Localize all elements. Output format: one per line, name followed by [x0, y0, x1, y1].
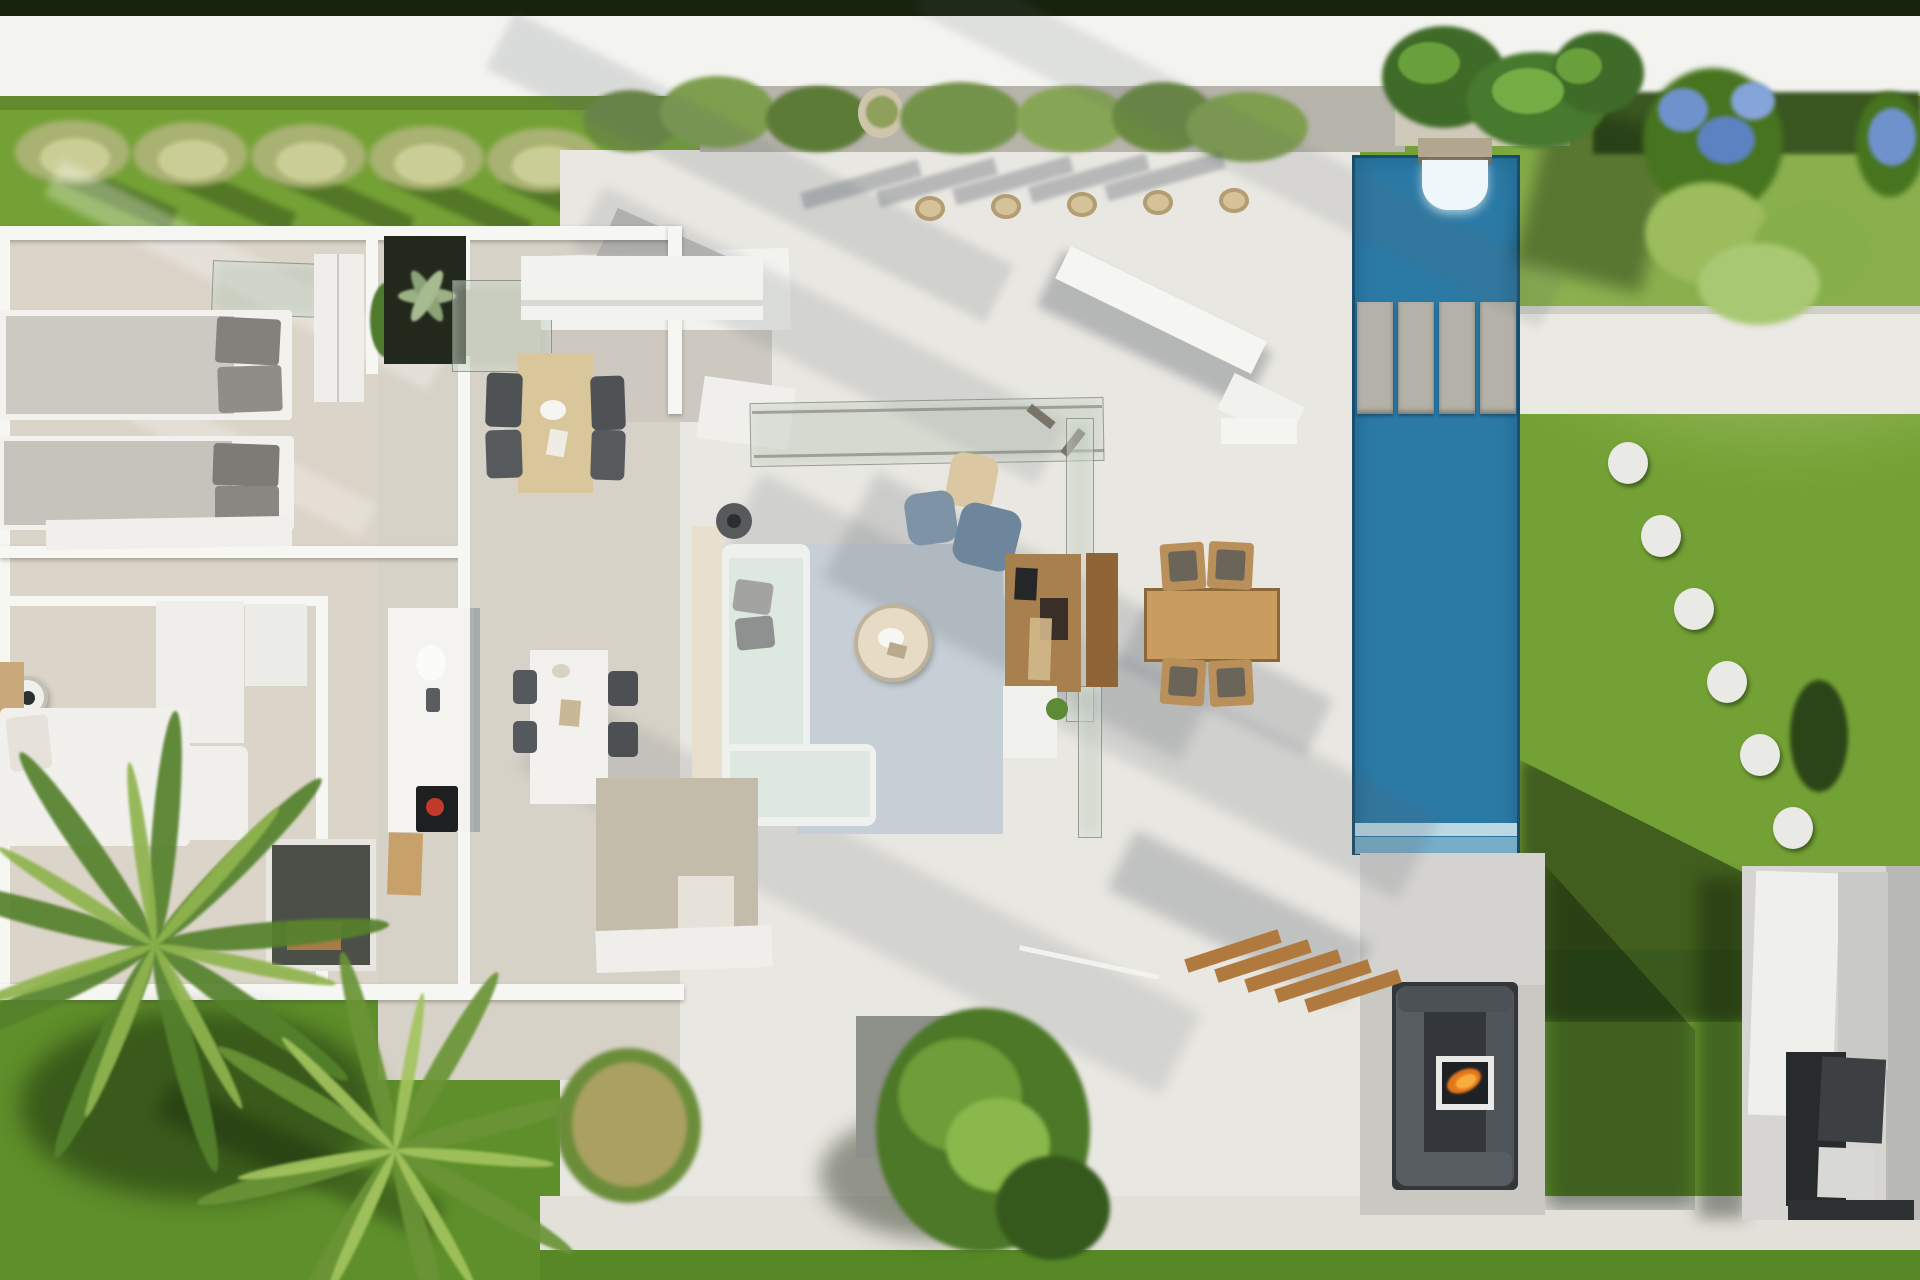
stepping-stones-4 — [1740, 734, 1780, 776]
hydrangea-bloom-1 — [1658, 88, 1708, 132]
lounger-towel-5 — [1219, 188, 1249, 213]
kitchen-board — [387, 832, 423, 895]
sideboard-runner — [1028, 618, 1052, 681]
indoor-chair-r1 — [590, 375, 626, 430]
bed1-pillow-2 — [217, 365, 283, 413]
island-bowl — [552, 664, 570, 678]
white-wall-piece — [1221, 418, 1297, 444]
walkway-right — [1520, 306, 1920, 414]
kitchen-glass-band — [470, 608, 480, 832]
cooktop-burner — [426, 798, 444, 816]
hydrangea-bloom-2 — [1697, 116, 1755, 164]
pool-tanning-slabs-3 — [1480, 302, 1516, 414]
bed2-pillow-1 — [212, 443, 279, 487]
stepping-stones-5 — [1773, 807, 1813, 849]
hydrangea-bloom-edge — [1868, 108, 1916, 166]
garden-bush-3 — [1698, 243, 1820, 325]
firepit-cushion-top — [1398, 986, 1512, 1012]
bed1-pillow-1 — [215, 316, 281, 365]
terrace-bush-4 — [900, 82, 1022, 154]
terrace-bush-3 — [766, 86, 870, 152]
wall-living-right — [668, 226, 682, 414]
stepping-stones-3 — [1707, 661, 1747, 703]
sofa-pillow-2 — [734, 615, 775, 651]
tv-wall-line — [521, 300, 763, 306]
villa-aerial-render — [0, 0, 1920, 1280]
monstera-leaf-3 — [1556, 48, 1602, 84]
terrace-pot-plant — [866, 96, 898, 128]
waterfall-cascade — [1422, 160, 1488, 210]
bar-stool-1 — [513, 670, 537, 704]
kitchen-back-edge — [595, 925, 772, 973]
bar-stool-2 — [513, 721, 537, 753]
monstera-leaf-2 — [1492, 68, 1564, 114]
dining-table-indoor — [518, 353, 593, 493]
bed2-duvet — [4, 441, 232, 525]
sideboard-plant — [1046, 698, 1068, 720]
indoor-chair-l2 — [485, 429, 523, 478]
closet-door-line — [337, 254, 339, 402]
lounger-towel-2 — [991, 194, 1021, 219]
bbq-side-box — [1817, 1147, 1875, 1199]
lounger-towel-3 — [1067, 192, 1097, 217]
monstera-leaf-1 — [1398, 42, 1460, 84]
island-board — [559, 699, 581, 727]
closet — [314, 254, 364, 402]
tree-canopy-dark — [996, 1156, 1110, 1260]
pouf-blue-1 — [903, 489, 960, 547]
tv-wall-cabinet — [521, 256, 763, 320]
bbq-column-right — [1886, 866, 1920, 1220]
dining-chair-t2-seat — [1215, 549, 1246, 580]
indoor-chair-l1 — [485, 372, 523, 427]
pool-tanning-slabs-2 — [1439, 302, 1475, 414]
bar-stool-4 — [608, 722, 638, 757]
bbq-base-dark — [1788, 1200, 1914, 1220]
kitchen-back-step — [678, 876, 734, 932]
grass-tufts-light-3 — [394, 144, 464, 184]
pool-tanning-slabs-1 — [1398, 302, 1434, 414]
bed1-duvet — [6, 316, 234, 414]
pool-tanning-slabs-0 — [1357, 302, 1393, 414]
glass-screen-lower — [1078, 686, 1102, 838]
sofa-pillow-1 — [732, 579, 774, 616]
bbq-grill — [1818, 1056, 1886, 1143]
conifer-right — [1790, 680, 1848, 792]
dining-wood-sideboard — [1086, 553, 1118, 687]
sideboard-speaker — [1014, 567, 1038, 600]
bar-stool-3 — [608, 671, 638, 706]
master-unit — [245, 604, 307, 686]
dry-grass-top — [572, 1062, 687, 1187]
firepit-cushion-bottom — [1398, 1152, 1512, 1186]
dining-decor-1 — [540, 400, 566, 420]
outdoor-dining-table — [1144, 588, 1280, 662]
floor-lamp-center — [727, 514, 741, 528]
lounger-towel-4 — [1143, 190, 1173, 215]
bottom-grass — [540, 1250, 1920, 1280]
dining-chair-b2-seat — [1216, 667, 1245, 697]
dining-chair-t1-seat — [1168, 550, 1198, 582]
indoor-chair-r2 — [590, 429, 626, 480]
hydrangea-bloom-3 — [1731, 82, 1775, 120]
sofa-back-frame — [692, 526, 724, 784]
kitchen-sink — [416, 645, 446, 681]
bbq-mid-counter — [1838, 872, 1888, 1070]
stepping-stones-1 — [1641, 515, 1681, 557]
stepping-stones-0 — [1608, 442, 1648, 484]
dining-chair-b1-seat — [1168, 666, 1198, 697]
grass-tufts-light-1 — [158, 140, 228, 180]
bbq-shadow — [1698, 878, 1746, 1218]
bed-bench — [46, 516, 292, 550]
grass-tufts-light-2 — [276, 142, 346, 182]
kitchen-faucet — [426, 688, 440, 712]
wall-top — [0, 226, 680, 240]
stepping-stones-2 — [1674, 588, 1714, 630]
sideboard-white-unit — [1003, 686, 1057, 758]
